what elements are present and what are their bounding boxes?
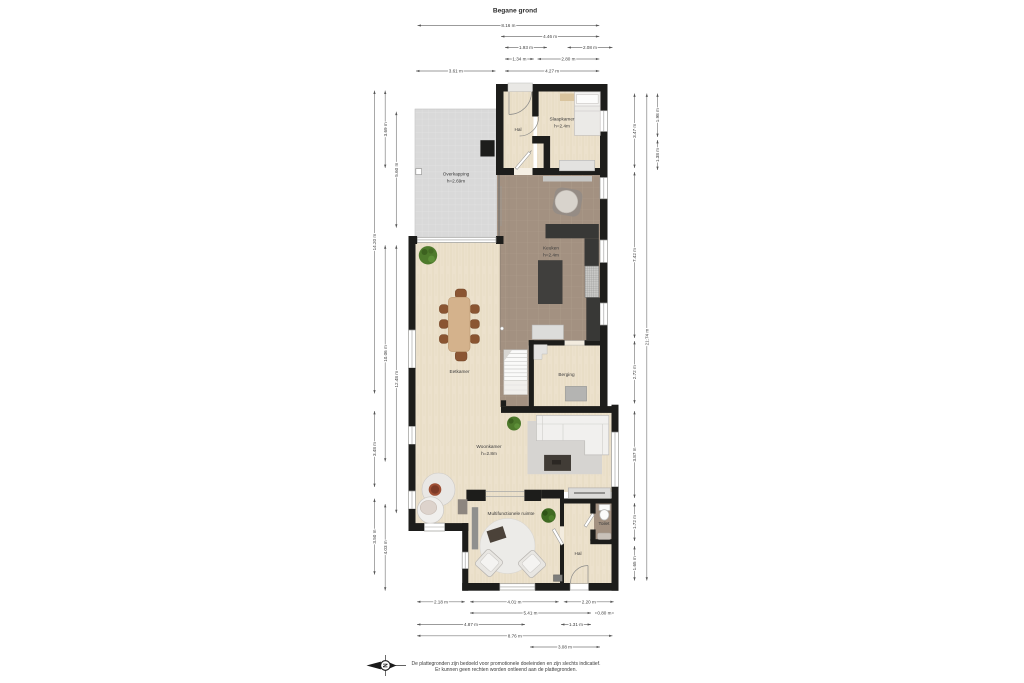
svg-text:1.38 m: 1.38 m [655, 148, 660, 162]
svg-text:Keuken: Keuken [543, 246, 559, 251]
svg-text:5.41 m: 5.41 m [523, 611, 537, 616]
svg-text:3.08 m: 3.08 m [558, 645, 572, 650]
svg-text:2.72 m: 2.72 m [632, 365, 637, 379]
svg-text:3.47 m: 3.47 m [632, 124, 637, 138]
svg-text:h=2.4m: h=2.4m [543, 253, 559, 258]
svg-text:Hal: Hal [514, 127, 521, 132]
svg-text:10.06 m: 10.06 m [383, 345, 388, 362]
svg-text:Woonkamer: Woonkamer [476, 444, 502, 449]
svg-text:2.08 m: 2.08 m [583, 45, 597, 50]
svg-text:3.69 m: 3.69 m [383, 122, 388, 136]
svg-text:1.98 m: 1.98 m [655, 108, 660, 122]
svg-text:1.65 m: 1.65 m [632, 556, 637, 570]
svg-text:1.31 m: 1.31 m [569, 622, 583, 627]
svg-text:Multifunctionele ruimte: Multifunctionele ruimte [488, 511, 535, 516]
svg-text:14.20 m: 14.20 m [372, 234, 377, 251]
svg-text:Overkapping: Overkapping [443, 172, 470, 177]
svg-text:1.72 m: 1.72 m [632, 515, 637, 529]
svg-text:3.87 m: 3.87 m [632, 447, 637, 461]
svg-text:8.76 m: 8.76 m [508, 633, 522, 638]
svg-text:h=2.69m: h=2.69m [447, 179, 465, 184]
svg-text:4.46 m: 4.46 m [543, 34, 557, 39]
svg-text:Hal: Hal [574, 551, 581, 556]
svg-text:h=2.4m: h=2.4m [554, 124, 570, 129]
svg-text:4.03 m: 4.03 m [383, 540, 388, 554]
svg-text:5.60 m: 5.60 m [394, 163, 399, 177]
svg-text:Begane grond: Begane grond [493, 8, 537, 15]
svg-text:Er kunnen geen rechten worden: Er kunnen geen rechten worden ontleend a… [435, 667, 577, 673]
svg-text:1.93 m: 1.93 m [519, 45, 533, 50]
svg-text:1.34 m: 1.34 m [512, 57, 526, 62]
svg-text:Berging: Berging [558, 372, 575, 377]
svg-text:4.87 m: 4.87 m [464, 622, 478, 627]
svg-text:Toilet: Toilet [599, 521, 611, 526]
svg-text:12.48 m: 12.48 m [394, 371, 399, 388]
svg-text:Slaapkamer: Slaapkamer [549, 117, 574, 122]
svg-text:4.27 m: 4.27 m [545, 69, 559, 74]
svg-text:21.74 m: 21.74 m [644, 329, 649, 346]
svg-text:N: N [384, 663, 390, 667]
svg-text:Eetkamer: Eetkamer [449, 369, 469, 374]
svg-text:4.01 m: 4.01 m [507, 599, 521, 604]
svg-text:0.80 m: 0.80 m [597, 611, 611, 616]
svg-text:2.20 m: 2.20 m [582, 599, 596, 604]
svg-text:2.18 m: 2.18 m [434, 599, 448, 604]
svg-text:7.42 m: 7.42 m [632, 248, 637, 262]
svg-text:h=2.8m: h=2.8m [481, 451, 497, 456]
svg-text:2.80 m: 2.80 m [561, 57, 575, 62]
svg-text:3.61 m: 3.61 m [449, 69, 463, 74]
svg-text:3.50 m: 3.50 m [372, 529, 377, 543]
svg-text:8.16 m: 8.16 m [501, 23, 515, 28]
svg-text:3.48 m: 3.48 m [372, 442, 377, 456]
